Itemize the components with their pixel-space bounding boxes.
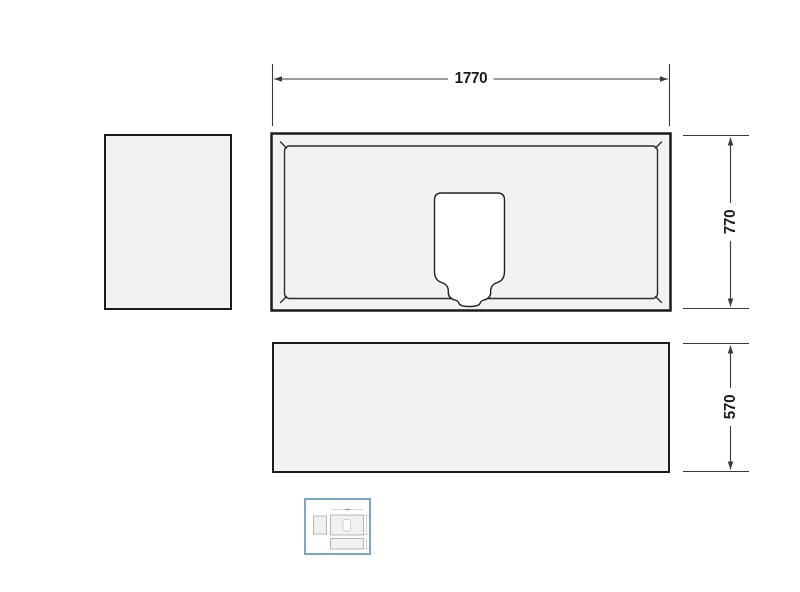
main-drawing: 1770 770 570 — [0, 0, 800, 592]
arrow-up-icon — [728, 138, 734, 146]
dim-label-top-width: 1770 — [448, 69, 494, 89]
dim-label-front-height: 570 — [721, 388, 741, 426]
arrow-down-icon — [728, 299, 734, 307]
thumbnail-mini-drawing — [306, 500, 369, 553]
arrow-left-icon — [274, 76, 282, 82]
thumbnail-drawing-selected[interactable] — [304, 498, 371, 555]
plan-view — [270, 132, 672, 314]
front-panel-view — [272, 342, 670, 473]
arrow-up-icon — [728, 346, 734, 354]
side-panel-view — [104, 134, 232, 310]
arrow-down-icon — [728, 462, 734, 470]
arrow-right-icon — [660, 76, 668, 82]
dim-label-side-height: 770 — [721, 203, 741, 241]
